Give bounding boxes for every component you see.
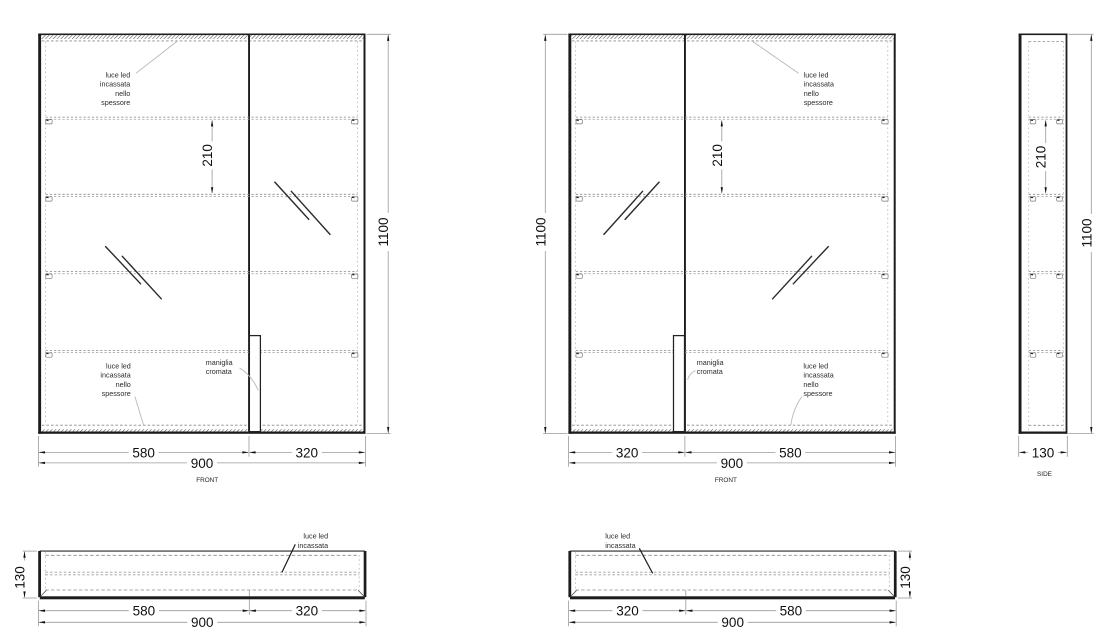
svg-text:320: 320	[616, 604, 639, 619]
svg-text:320: 320	[296, 445, 319, 460]
svg-text:580: 580	[133, 604, 156, 619]
svg-text:spessore: spessore	[102, 389, 131, 398]
svg-text:SIDE: SIDE	[1037, 471, 1052, 478]
svg-text:900: 900	[191, 456, 214, 471]
svg-text:210: 210	[200, 144, 215, 167]
svg-text:210: 210	[710, 144, 725, 167]
svg-text:spessore: spessore	[804, 98, 833, 107]
svg-text:incassata: incassata	[804, 80, 834, 89]
svg-text:spessore: spessore	[803, 389, 832, 398]
svg-text:FRONT: FRONT	[196, 477, 218, 484]
svg-text:320: 320	[296, 604, 319, 619]
svg-text:FRONT: FRONT	[715, 477, 737, 484]
svg-text:incassata: incassata	[298, 541, 328, 550]
svg-text:incassata: incassata	[605, 541, 635, 550]
svg-text:incassata: incassata	[100, 371, 130, 380]
svg-text:580: 580	[780, 604, 803, 619]
svg-text:320: 320	[616, 445, 639, 460]
svg-text:1100: 1100	[1079, 218, 1094, 247]
svg-text:cromata: cromata	[206, 367, 232, 376]
svg-text:maniglia: maniglia	[206, 358, 233, 367]
svg-text:maniglia: maniglia	[697, 358, 724, 367]
svg-text:nello: nello	[804, 89, 819, 98]
svg-text:luce led: luce led	[605, 532, 630, 541]
svg-text:cromata: cromata	[697, 367, 723, 376]
svg-text:nello: nello	[116, 380, 131, 389]
svg-text:210: 210	[1034, 146, 1049, 169]
svg-text:580: 580	[132, 445, 155, 460]
svg-text:900: 900	[721, 456, 744, 471]
svg-text:incassata: incassata	[100, 80, 130, 89]
svg-text:580: 580	[779, 445, 802, 460]
svg-text:spessore: spessore	[101, 98, 130, 107]
svg-text:luce led: luce led	[303, 532, 328, 541]
svg-text:luce led: luce led	[106, 70, 131, 79]
svg-text:900: 900	[191, 615, 214, 630]
svg-text:luce led: luce led	[804, 70, 829, 79]
svg-text:1100: 1100	[376, 217, 391, 246]
svg-text:incassata: incassata	[803, 371, 833, 380]
svg-text:130: 130	[13, 566, 28, 589]
svg-text:luce led: luce led	[106, 361, 131, 370]
svg-text:luce led: luce led	[803, 361, 828, 370]
svg-text:nello: nello	[115, 89, 130, 98]
svg-text:130: 130	[1032, 445, 1055, 460]
svg-text:nello: nello	[803, 380, 818, 389]
svg-text:1100: 1100	[533, 217, 548, 246]
svg-text:900: 900	[721, 615, 744, 630]
svg-text:130: 130	[898, 566, 913, 589]
